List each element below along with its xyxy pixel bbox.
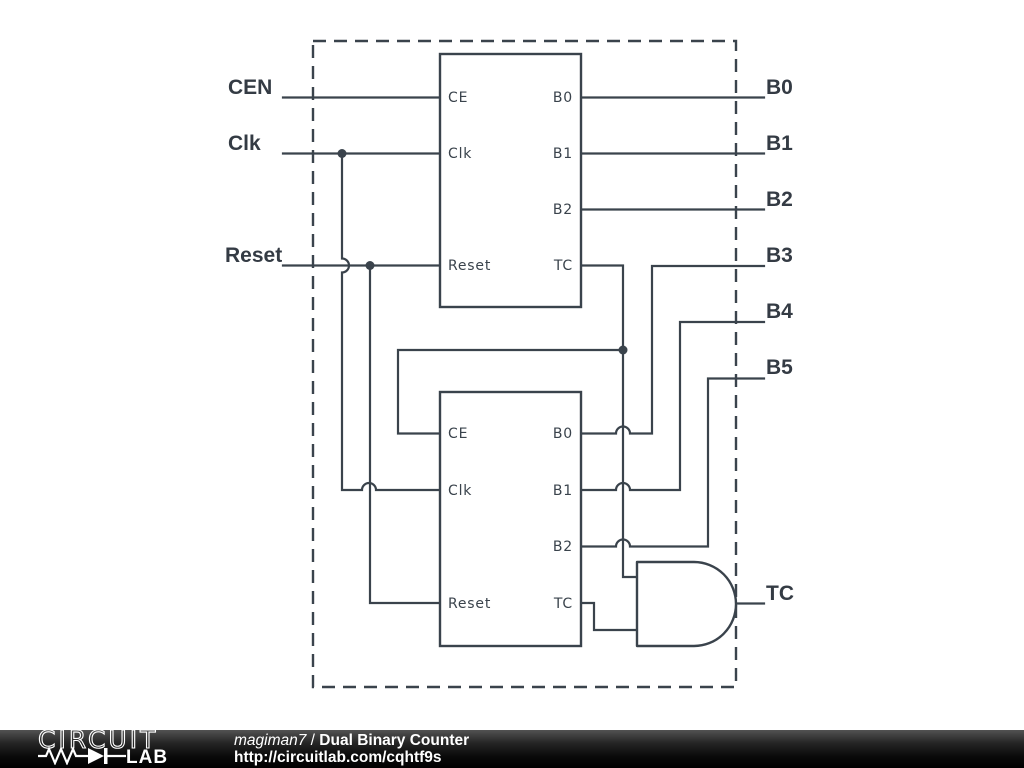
page: CE Clk Reset B0 B1 B2 TC CE Clk Reset B0…: [0, 0, 1024, 768]
pin-label: B1: [553, 483, 573, 499]
net-label-reset: Reset: [225, 244, 282, 267]
footer-url: http://circuitlab.com/cqhtf9s: [234, 749, 469, 766]
net-label-tc: TC: [766, 582, 794, 605]
and-gate: [637, 562, 736, 646]
pin-label: B1: [553, 146, 573, 162]
pin-label: Reset: [448, 596, 491, 612]
footer-author: magiman7: [234, 732, 306, 749]
net-label-b5: B5: [766, 356, 793, 379]
wire-tc1-to-gate: [581, 266, 637, 578]
junction-dot: [366, 261, 375, 270]
pin-label: TC: [553, 596, 573, 612]
circuitlab-logo: CIRCUIT LAB: [38, 729, 188, 768]
wire-clk-branch: [342, 154, 440, 491]
schematic-canvas: CE Clk Reset B0 B1 B2 TC CE Clk Reset B0…: [0, 0, 1024, 730]
junction-dot: [338, 149, 347, 158]
counter-block-1: CE Clk Reset B0 B1 B2 TC: [440, 54, 581, 307]
pin-label: Reset: [448, 258, 491, 274]
net-label-clk: Clk: [228, 132, 261, 155]
net-label-cen: CEN: [228, 76, 272, 99]
footer-title: Dual Binary Counter: [319, 732, 469, 749]
logo-lab-text: LAB: [126, 747, 168, 765]
net-label-b2: B2: [766, 188, 793, 211]
net-label-b3: B3: [766, 244, 793, 267]
counter-block-2: CE Clk Reset B0 B1 B2 TC: [440, 392, 581, 646]
footer-bar: CIRCUIT LAB magiman7 / Dual Binary Count…: [0, 730, 1024, 768]
net-label-b4: B4: [766, 300, 793, 323]
pin-label: B2: [553, 539, 573, 555]
net-label-b1: B1: [766, 132, 793, 155]
pin-label: B0: [553, 426, 573, 442]
pin-label: Clk: [448, 483, 472, 499]
footer-title-line: magiman7 / Dual Binary Counter: [234, 732, 469, 749]
footer-meta: magiman7 / Dual Binary Counter http://ci…: [234, 732, 469, 766]
net-label-b0: B0: [766, 76, 793, 99]
pin-label: CE: [448, 90, 468, 106]
pin-label: Clk: [448, 146, 472, 162]
pin-label: B0: [553, 90, 573, 106]
footer-separator: /: [306, 732, 319, 749]
output-net-labels: B0 B1 B2 B3 B4 B5 TC: [766, 76, 794, 605]
pin-label: B2: [553, 202, 573, 218]
junction-dot: [619, 346, 628, 355]
wire-tc2-to-gate: [581, 603, 637, 630]
input-net-labels: CEN Clk Reset: [225, 76, 282, 267]
pin-label: TC: [553, 258, 573, 274]
pin-label: CE: [448, 426, 468, 442]
